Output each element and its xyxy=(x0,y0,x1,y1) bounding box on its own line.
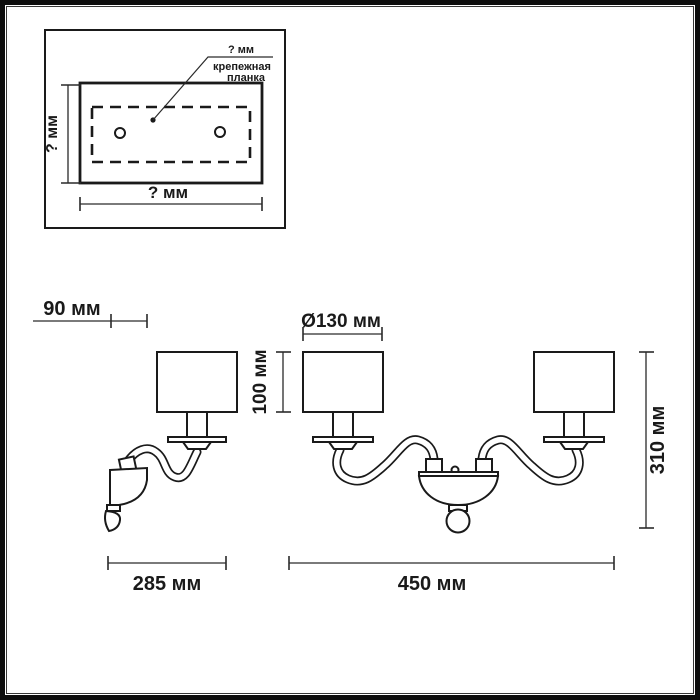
inset-width-dimension: ? мм xyxy=(80,183,262,211)
lamp-shade-left xyxy=(303,352,383,412)
shade-height-value: 100 мм xyxy=(250,349,271,414)
lamp-shade xyxy=(157,352,237,412)
bobeche-cup-left xyxy=(329,442,357,449)
screw-hole-left xyxy=(115,128,125,138)
bracket-depth-value: 90 мм xyxy=(43,298,100,320)
screw-hole-right xyxy=(215,127,225,137)
inset-height-dimension: ? мм xyxy=(44,85,81,183)
dimension-450mm: 450 мм xyxy=(289,556,614,595)
plate-width-value: ? мм xyxy=(148,183,188,202)
bowl-socket-left xyxy=(426,459,442,472)
dimension-130mm: Ø130 мм xyxy=(301,311,382,341)
shade-diameter-value: Ø130 мм xyxy=(301,311,381,332)
mounting-plate-inset: ? мм крепежная планка ? мм ? мм xyxy=(44,30,285,228)
wall-bracket xyxy=(110,468,147,505)
lamp-neck-right xyxy=(564,411,584,437)
bobeche-cup xyxy=(183,442,211,449)
dimension-310mm: 310 мм xyxy=(639,352,669,528)
callout-text-line2: планка xyxy=(227,72,266,84)
bowl-socket-right xyxy=(476,459,492,472)
double-sconce: 450 мм 310 мм xyxy=(289,352,669,595)
single-sconce: 285 мм xyxy=(105,352,237,595)
lamp-neck-left xyxy=(333,411,353,437)
lamp-shade-right xyxy=(534,352,614,412)
bobeche-cup-right xyxy=(560,442,588,449)
bracket-collar xyxy=(107,505,120,511)
sconce-dimension-drawing: ? мм крепежная планка ? мм ? мм 90 мм xyxy=(0,0,700,700)
callout-dim-value: ? мм xyxy=(228,44,254,56)
dimension-100mm: 100 мм xyxy=(250,349,291,414)
ball-finial xyxy=(447,510,470,533)
lamp-neck xyxy=(187,411,207,437)
plate-height-value: ? мм xyxy=(44,115,61,153)
dimension-90mm: 90 мм xyxy=(33,298,147,328)
center-bowl xyxy=(419,476,498,505)
mounting-plate-outline xyxy=(80,83,262,183)
double-width-value: 450 мм xyxy=(398,573,467,595)
bracket-finial xyxy=(105,511,120,531)
dimension-285mm: 285 мм xyxy=(108,556,226,595)
total-height-value: 310 мм xyxy=(647,406,669,475)
single-width-value: 285 мм xyxy=(133,573,202,595)
technical-drawing-page: ? мм крепежная планка ? мм ? мм 90 мм xyxy=(0,0,700,700)
